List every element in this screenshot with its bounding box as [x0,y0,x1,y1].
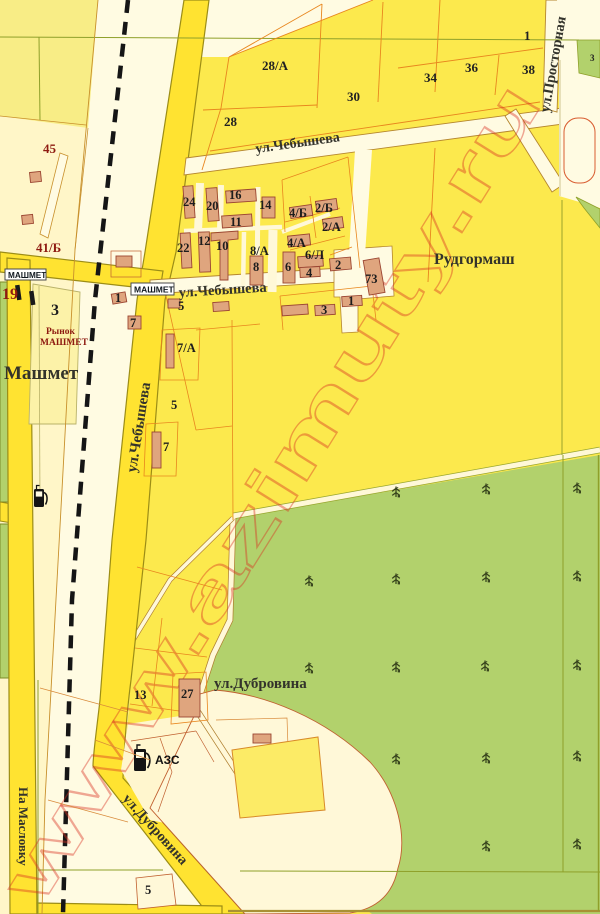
svg-text:МАШМЕТ: МАШМЕТ [8,271,46,280]
svg-text:5: 5 [171,398,177,412]
svg-text:27: 27 [181,687,194,701]
svg-text:30: 30 [347,89,360,104]
svg-text:2/Б: 2/Б [315,201,333,215]
svg-text:5: 5 [178,299,184,313]
svg-text:7/А: 7/А [177,341,196,355]
svg-text:41/Б: 41/Б [36,240,61,255]
svg-text:ул.Дубровина: ул.Дубровина [214,676,307,692]
svg-text:АЗС: АЗС [155,753,180,767]
svg-text:4: 4 [306,266,313,280]
svg-text:2/А: 2/А [322,220,341,234]
svg-text:8/А: 8/А [250,244,269,258]
svg-text:20: 20 [206,199,219,213]
svg-text:6: 6 [285,260,291,274]
svg-text:1: 1 [115,291,121,305]
svg-text:28/А: 28/А [262,58,289,73]
svg-text:12: 12 [198,234,211,248]
svg-text:6/Л: 6/Л [305,248,325,262]
svg-text:13: 13 [134,688,147,702]
svg-text:45: 45 [43,141,57,156]
svg-text:4/Б: 4/Б [289,206,307,220]
svg-text:3: 3 [590,53,595,63]
svg-text:8: 8 [253,260,259,274]
svg-text:Рынок: Рынок [46,327,75,337]
svg-text:МАШМЕТ: МАШМЕТ [40,338,89,348]
svg-text:7: 7 [130,316,136,330]
svg-text:3: 3 [321,303,327,317]
svg-text:Машмет: Машмет [4,363,79,384]
svg-text:14: 14 [259,198,272,212]
svg-text:1: 1 [348,294,354,308]
svg-text:19: 19 [2,286,18,303]
svg-text:МАШМЕТ: МАШМЕТ [134,285,175,295]
svg-text:22: 22 [177,241,190,255]
svg-text:2: 2 [335,258,341,272]
svg-text:73: 73 [365,272,378,286]
svg-text:28: 28 [224,114,238,129]
svg-text:На Масловку: На Масловку [16,787,31,866]
svg-text:24: 24 [183,195,196,209]
svg-text:38: 38 [522,62,536,77]
svg-text:34: 34 [424,70,438,85]
svg-text:11: 11 [230,215,242,229]
svg-text:Рудгормаш: Рудгормаш [434,251,515,268]
svg-text:4/А: 4/А [287,236,306,250]
svg-text:7: 7 [163,440,169,454]
svg-text:36: 36 [465,60,479,75]
svg-text:3: 3 [51,302,59,319]
svg-text:16: 16 [229,188,242,202]
svg-text:10: 10 [216,239,229,253]
svg-text:5: 5 [145,883,151,897]
svg-text:1: 1 [524,28,531,43]
